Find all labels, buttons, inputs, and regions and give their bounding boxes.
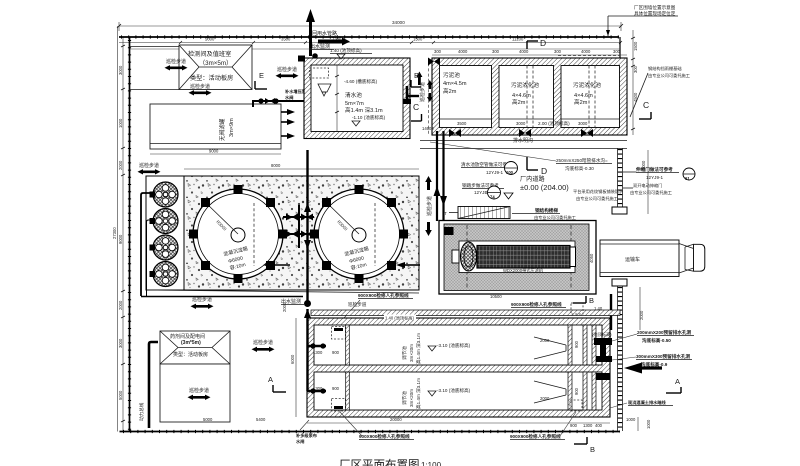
svg-text:B: B	[590, 445, 595, 454]
svg-text:4000: 4000	[581, 49, 591, 54]
svg-text:无阀滤罐: 无阀滤罐	[218, 118, 226, 141]
svg-text:4000: 4000	[458, 49, 468, 54]
svg-text:巡检步道: 巡检步道	[277, 66, 297, 73]
svg-text:400: 400	[595, 423, 603, 428]
svg-text:1.40 (池顶标高): 1.40 (池顶标高)	[385, 315, 414, 322]
svg-text:3000: 3000	[516, 121, 526, 126]
svg-text:300: 300	[434, 49, 442, 54]
svg-text:300mmX300预留排水孔洞: 300mmX300预留排水孔洞	[636, 353, 691, 360]
svg-text:2000: 2000	[540, 338, 550, 343]
svg-text:300: 300	[554, 49, 562, 54]
svg-text:1000: 1000	[646, 419, 651, 429]
svg-text:-1.10 (池底标高): -1.10 (池底标高)	[352, 114, 386, 121]
svg-text:61: 61	[685, 176, 690, 181]
svg-text:巡检步道: 巡检步道	[189, 387, 209, 394]
svg-text:9000: 9000	[209, 149, 219, 154]
svg-text:±0.00 (204.00): ±0.00 (204.00)	[520, 183, 569, 192]
svg-text:调节池: 调节池	[401, 391, 408, 405]
svg-text:补多级泵布: 补多级泵布	[295, 432, 318, 439]
svg-text:3000: 3000	[578, 121, 588, 126]
svg-text:高2m: 高2m	[574, 98, 588, 106]
svg-text:-3.10 (池底标高): -3.10 (池底标高)	[437, 387, 471, 394]
svg-text:A: A	[675, 377, 680, 386]
svg-text:300: 300	[613, 49, 621, 54]
svg-text:1000: 1000	[118, 118, 123, 128]
svg-text:3000: 3000	[118, 65, 123, 75]
svg-text:巡检步道: 巡检步道	[192, 296, 212, 303]
svg-text:1000: 1000	[626, 417, 636, 422]
svg-text:12YJ9-1: 12YJ9-1	[646, 175, 664, 180]
svg-text:-3.10 (池底标高): -3.10 (池底标高)	[437, 342, 471, 349]
svg-text:WDX2000带式压滤机: WDX2000带式压滤机	[503, 267, 544, 274]
svg-text:2000: 2000	[639, 310, 644, 320]
svg-text:巡检步道: 巡检步道	[253, 339, 273, 346]
svg-text:1:100: 1:100	[421, 461, 442, 466]
svg-text:沟底标高-0.50: 沟底标高-0.50	[642, 337, 671, 344]
svg-text:T: T	[444, 211, 447, 216]
svg-text:100: 100	[506, 170, 514, 175]
svg-text:平台采用花纹钢板铺装防护: 平台采用花纹钢板铺装防护	[573, 188, 623, 195]
svg-text:900: 900	[574, 387, 579, 395]
svg-text:污泥池: 污泥池	[443, 71, 460, 79]
svg-text:厂内道路: 厂内道路	[520, 175, 546, 183]
svg-text:8000: 8000	[271, 163, 281, 168]
svg-text:1000: 1000	[641, 160, 646, 170]
svg-text:1500: 1500	[633, 41, 638, 51]
svg-text:900X900检修人孔参照线: 900X900检修人孔参照线	[510, 433, 561, 440]
svg-text:(池顶标高): (池顶标高)	[592, 331, 612, 338]
svg-text:高2m: 高2m	[512, 98, 526, 106]
svg-text:5400: 5400	[256, 417, 266, 422]
svg-text:3000: 3000	[118, 338, 123, 348]
svg-text:由专业公司可委托施工: 由专业公司可委托施工	[648, 72, 690, 79]
svg-text:27300: 27300	[112, 227, 117, 239]
svg-text:A: A	[268, 375, 273, 384]
svg-text:D: D	[540, 38, 546, 48]
svg-text:清水池: 清水池	[345, 91, 362, 99]
svg-text:4×4.6m: 4×4.6m	[574, 93, 593, 99]
svg-text:3500: 3500	[457, 121, 467, 126]
svg-text:2000: 2000	[282, 302, 287, 312]
svg-text:3m×9m: 3m×9m	[229, 118, 235, 137]
svg-text:5000: 5000	[203, 417, 213, 422]
svg-text:5000: 5000	[118, 390, 123, 400]
svg-text:类型：活动板房: 类型：活动板房	[173, 351, 208, 358]
svg-text:4050: 4050	[589, 253, 594, 263]
svg-text:（3m×5m）: （3m×5m）	[199, 60, 232, 67]
svg-text:现浇混凝土排水暗线: 现浇混凝土排水暗线	[628, 399, 667, 406]
svg-text:250mmX250暗管排水沟=: 250mmX250暗管排水沟=	[556, 157, 608, 164]
svg-text:1300: 1300	[313, 350, 323, 355]
svg-text:(3m*5m): (3m*5m)	[181, 340, 201, 346]
svg-text:巡检步道: 巡检步道	[426, 196, 433, 216]
svg-text:900: 900	[332, 386, 340, 391]
svg-text:6000: 6000	[290, 354, 295, 364]
svg-text:沟底标高-0.9: 沟底标高-0.9	[641, 361, 668, 368]
svg-text:4×4.6m: 4×4.6m	[512, 93, 531, 99]
svg-text:20000: 20000	[390, 417, 402, 422]
svg-text:E: E	[259, 71, 264, 80]
svg-text:调节池: 调节池	[401, 346, 408, 360]
svg-text:900: 900	[332, 350, 340, 355]
svg-text:1.40 (池顶标高): 1.40 (池顶标高)	[330, 47, 362, 54]
svg-text:4500: 4500	[633, 92, 638, 102]
svg-text:厂区平面布置图: 厂区平面布置图	[339, 459, 420, 466]
svg-text:运输车: 运输车	[625, 256, 640, 263]
svg-text:高1.4m 深3.1m: 高1.4m 深3.1m	[415, 333, 422, 364]
svg-text:C: C	[413, 102, 419, 112]
svg-text:双开电动伸缩门: 双开电动伸缩门	[633, 182, 662, 189]
svg-text:污泥浓化池: 污泥浓化池	[573, 81, 601, 89]
svg-text:300: 300	[633, 65, 638, 73]
svg-text:74: 74	[490, 195, 495, 200]
svg-text:10500: 10500	[490, 294, 502, 299]
svg-text:14600: 14600	[422, 126, 434, 131]
svg-text:C: C	[643, 100, 649, 110]
svg-text:B: B	[589, 296, 594, 305]
svg-text:动力总线: 动力总线	[138, 402, 145, 421]
svg-text:34000: 34000	[392, 20, 405, 25]
svg-text:4m×4.5m: 4m×4.5m	[443, 81, 467, 87]
svg-text:900X900检修人孔参照线: 900X900检修人孔参照线	[359, 433, 410, 440]
svg-text:-4.60 (槽底标高): -4.60 (槽底标高)	[344, 78, 378, 85]
svg-text:1.40: 1.40	[594, 306, 603, 311]
svg-text:1300: 1300	[583, 423, 593, 428]
svg-text:4000: 4000	[519, 49, 529, 54]
svg-text:钢结构挡雨棚基础: 钢结构挡雨棚基础	[648, 65, 682, 72]
svg-text:D: D	[541, 166, 547, 176]
svg-text:900X900检修人孔参照线: 900X900检修人孔参照线	[511, 301, 562, 308]
svg-text:水阀: 水阀	[285, 94, 293, 101]
svg-text:巡检步道: 巡检步道	[139, 162, 159, 169]
svg-text:B: B	[414, 71, 419, 80]
svg-text:巡检步道: 巡检步道	[190, 83, 210, 90]
svg-text:药剂间及配电间: 药剂间及配电间	[170, 333, 205, 340]
svg-text:12YJ9-1: 12YJ9-1	[486, 170, 504, 175]
svg-text:巡检步道: 巡检步道	[166, 58, 186, 65]
svg-text:回用水管路: 回用水管路	[312, 30, 337, 37]
svg-text:检测间及值班室: 检测间及值班室	[188, 50, 231, 58]
svg-text:900: 900	[574, 340, 579, 348]
svg-text:900: 900	[570, 423, 578, 428]
svg-text:900X900检修人孔参照线: 900X900检修人孔参照线	[358, 292, 409, 299]
svg-text:沟底标高-0.30: 沟底标高-0.30	[565, 165, 594, 172]
svg-text:高1.4m 深3.1m: 高1.4m 深3.1m	[415, 378, 422, 409]
svg-text:污泥浓化池: 污泥浓化池	[511, 81, 539, 89]
svg-text:12YJB: 12YJB	[474, 190, 488, 195]
svg-text:2000: 2000	[540, 396, 550, 401]
svg-text:3m×20m: 3m×20m	[409, 344, 414, 362]
svg-text:9000: 9000	[118, 234, 123, 244]
svg-text:2000: 2000	[118, 300, 123, 310]
svg-text:具体位置现场定位定: 具体位置现场定位定	[634, 10, 676, 17]
svg-text:2.00 (池顶标高): 2.00 (池顶标高)	[538, 120, 570, 127]
svg-text:由专业公司可委托施工: 由专业公司可委托施工	[630, 189, 672, 196]
svg-text:水闸: 水闸	[296, 438, 304, 445]
svg-text:3m×20m: 3m×20m	[409, 389, 414, 407]
svg-text:类型：活动板房: 类型：活动板房	[190, 74, 233, 82]
svg-text:5m×7m: 5m×7m	[345, 101, 364, 107]
svg-text:300: 300	[492, 49, 500, 54]
svg-text:2000: 2000	[118, 160, 123, 170]
svg-text:200mmX200预留排水孔洞: 200mmX200预留排水孔洞	[637, 329, 692, 336]
svg-text:钢结构楼梯: 钢结构楼梯	[535, 207, 558, 214]
svg-text:巡检步道: 巡检步道	[348, 301, 367, 308]
svg-text:高1.4m 深3.1m: 高1.4m 深3.1m	[345, 106, 383, 114]
svg-text:高2m: 高2m	[443, 87, 457, 95]
svg-text:厂区围墙位置示意图: 厂区围墙位置示意图	[634, 4, 676, 11]
svg-text:排水明沟: 排水明沟	[513, 137, 533, 144]
svg-text:由专业公司可委托施工: 由专业公司可委托施工	[576, 195, 618, 202]
